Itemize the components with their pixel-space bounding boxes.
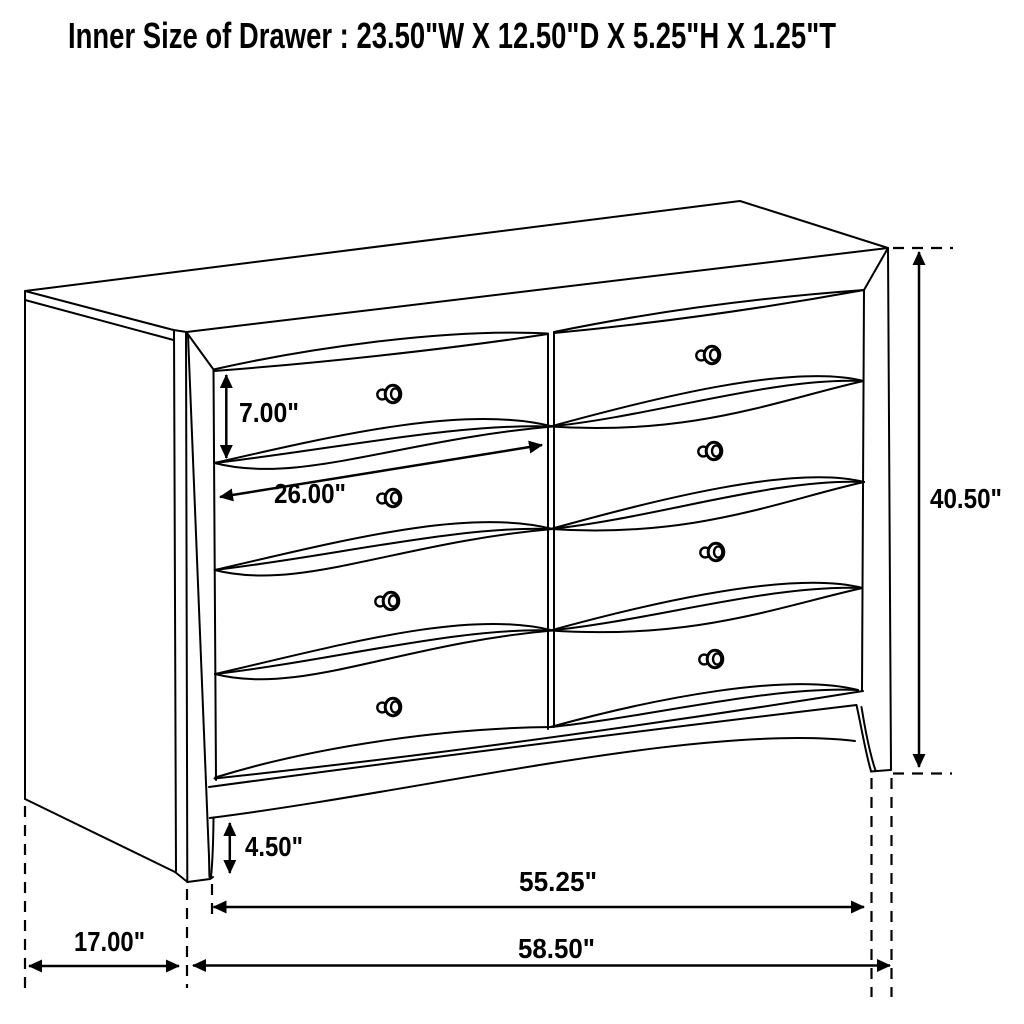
svg-text:7.00": 7.00" [239,397,299,428]
svg-text:4.50": 4.50" [245,831,303,862]
svg-text:Inner Size of Drawer : 23.50"W: Inner Size of Drawer : 23.50"W X 12.50"D… [68,15,836,56]
svg-text:55.25": 55.25" [519,866,597,897]
svg-text:58.50": 58.50" [518,933,595,964]
svg-text:26.00": 26.00" [274,478,346,509]
svg-text:17.00": 17.00" [74,926,145,957]
svg-text:40.50": 40.50" [930,483,1002,514]
